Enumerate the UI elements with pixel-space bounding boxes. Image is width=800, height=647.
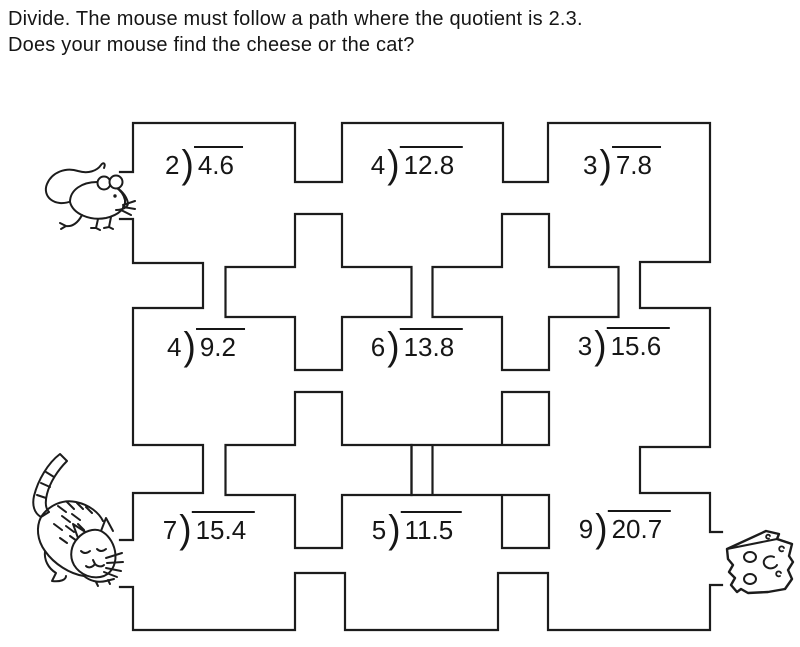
division-problem-5: 6 ) 13.8 xyxy=(371,328,463,360)
maze-walls xyxy=(120,123,722,630)
divisor: 5 xyxy=(372,517,386,543)
division-problem-9: 9 ) 20.7 xyxy=(579,510,671,542)
division-bracket: ) xyxy=(595,514,607,543)
dividend: 12.8 xyxy=(400,146,464,178)
dividend: 11.5 xyxy=(401,511,463,543)
dividend: 13.8 xyxy=(400,328,464,360)
dividend: 15.6 xyxy=(607,327,671,359)
worksheet-page: Divide. The mouse must follow a path whe… xyxy=(0,0,800,647)
dividend: 15.4 xyxy=(192,511,256,543)
division-bracket: ) xyxy=(594,331,606,360)
division-problem-2: 4 ) 12.8 xyxy=(371,146,463,178)
divisor: 6 xyxy=(371,334,385,360)
dividend: 4.6 xyxy=(194,146,243,178)
dividend: 20.7 xyxy=(608,510,672,542)
divisor: 4 xyxy=(371,152,385,178)
division-bracket: ) xyxy=(599,150,611,179)
division-bracket: ) xyxy=(387,150,399,179)
division-problem-7: 7 ) 15.4 xyxy=(163,511,255,543)
division-bracket: ) xyxy=(181,150,193,179)
cheese-icon xyxy=(727,531,793,593)
divisor: 4 xyxy=(167,334,181,360)
dividend: 7.8 xyxy=(612,146,661,178)
divisor: 9 xyxy=(579,516,593,542)
division-bracket: ) xyxy=(179,515,191,544)
division-problem-3: 3 ) 7.8 xyxy=(583,146,661,178)
division-bracket: ) xyxy=(183,332,195,361)
dividend: 9.2 xyxy=(196,328,245,360)
division-bracket: ) xyxy=(388,515,400,544)
divisor: 2 xyxy=(165,152,179,178)
division-problem-8: 5 ) 11.5 xyxy=(372,511,462,543)
division-problem-1: 2 ) 4.6 xyxy=(165,146,243,178)
divisor: 7 xyxy=(163,517,177,543)
divisor: 3 xyxy=(578,333,592,359)
division-problem-6: 3 ) 15.6 xyxy=(578,327,670,359)
division-bracket: ) xyxy=(387,332,399,361)
cat-icon xyxy=(33,454,123,586)
division-problem-4: 4 ) 9.2 xyxy=(167,328,245,360)
divisor: 3 xyxy=(583,152,597,178)
